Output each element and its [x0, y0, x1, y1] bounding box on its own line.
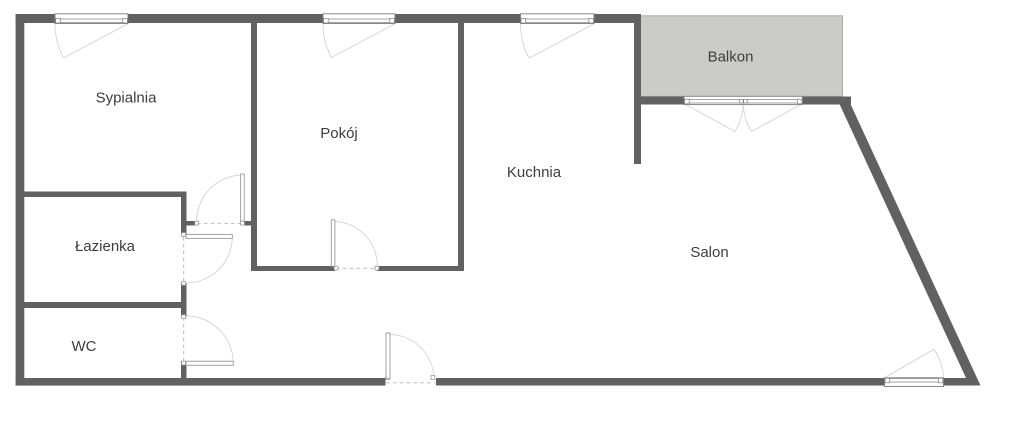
svg-text:Salon: Salon — [690, 244, 728, 261]
svg-text:Sypialnia: Sypialnia — [96, 90, 158, 107]
svg-text:Kuchnia: Kuchnia — [507, 164, 562, 181]
svg-text:Balkon: Balkon — [708, 49, 754, 66]
svg-text:WC: WC — [72, 338, 97, 355]
svg-text:Pokój: Pokój — [320, 125, 358, 142]
svg-text:Łazienka: Łazienka — [75, 238, 136, 255]
